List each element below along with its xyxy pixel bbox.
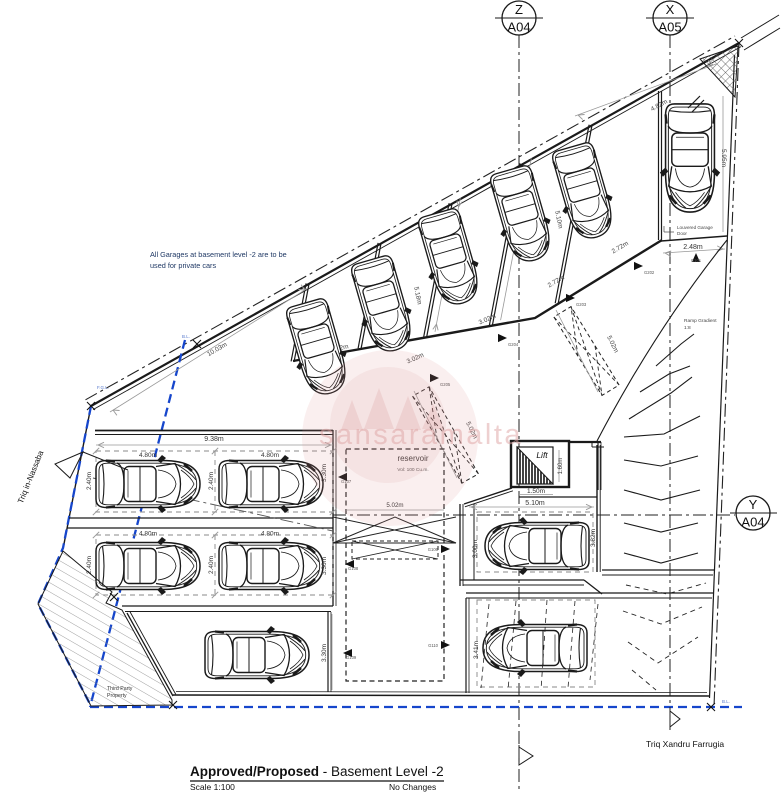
svg-text:4.80m: 4.80m (261, 452, 279, 459)
svg-text:B.L.: B.L. (182, 334, 190, 339)
svg-text:G202: G202 (644, 270, 655, 275)
svg-text:F.G.L.: F.G.L. (97, 385, 109, 390)
svg-text:Third Party: Third Party (107, 686, 133, 692)
svg-text:9.38m: 9.38m (204, 436, 224, 443)
svg-text:sansaramalta: sansaramalta (319, 419, 523, 451)
svg-text:2.40m: 2.40m (208, 472, 215, 490)
svg-text:Y: Y (749, 497, 758, 512)
svg-text:Triq Xandru Farrugia: Triq Xandru Farrugia (646, 739, 724, 749)
svg-text:Door: Door (677, 231, 687, 236)
svg-text:3.82m: 3.82m (590, 529, 597, 547)
svg-text:Approved/Proposed - Basement L: Approved/Proposed - Basement Level -2 (190, 764, 444, 779)
svg-text:Scale 1:100: Scale 1:100 (190, 782, 235, 792)
svg-text:All Garages at basement level: All Garages at basement level -2 are to … (150, 250, 287, 259)
svg-text:2.48m: 2.48m (683, 244, 703, 251)
svg-text:A05: A05 (658, 20, 681, 35)
svg-text:G203: G203 (576, 302, 587, 307)
svg-text:1.60m: 1.60m (558, 458, 564, 475)
svg-text:5.95m: 5.95m (720, 149, 727, 167)
svg-text:3.30m: 3.30m (321, 557, 328, 575)
svg-text:used for private cars: used for private cars (150, 261, 216, 270)
svg-text:Lift: Lift (536, 450, 548, 460)
svg-text:2.40m: 2.40m (86, 472, 93, 490)
svg-text:G109: G109 (346, 655, 357, 660)
svg-text:1:8: 1:8 (684, 325, 691, 331)
svg-text:Ramp Gradient: Ramp Gradient (684, 318, 717, 324)
svg-text:G108: G108 (348, 566, 359, 571)
svg-text:Property: Property (107, 693, 127, 699)
svg-text:4.80m: 4.80m (139, 452, 157, 459)
svg-text:G204: G204 (508, 342, 519, 347)
svg-text:5.10m: 5.10m (525, 500, 545, 507)
svg-text:2.40m: 2.40m (208, 556, 215, 574)
svg-text:G110: G110 (428, 643, 439, 648)
svg-text:G106: G106 (428, 547, 439, 552)
svg-text:4.80m: 4.80m (261, 531, 279, 538)
svg-text:A04: A04 (741, 515, 764, 530)
svg-text:A04: A04 (507, 20, 530, 35)
svg-text:B.L.: B.L. (722, 699, 730, 704)
svg-text:1.50m: 1.50m (527, 488, 545, 495)
svg-text:4.80m: 4.80m (139, 531, 157, 538)
svg-text:G101: G101 (691, 258, 702, 263)
svg-text:X: X (666, 2, 675, 17)
svg-text:Louvered Garage: Louvered Garage (677, 225, 713, 230)
svg-text:3.30m: 3.30m (321, 644, 328, 662)
svg-text:No Changes: No Changes (389, 782, 436, 792)
svg-text:3.41m: 3.41m (473, 641, 480, 659)
svg-text:3.00m: 3.00m (472, 540, 479, 558)
svg-text:Z: Z (515, 2, 523, 17)
